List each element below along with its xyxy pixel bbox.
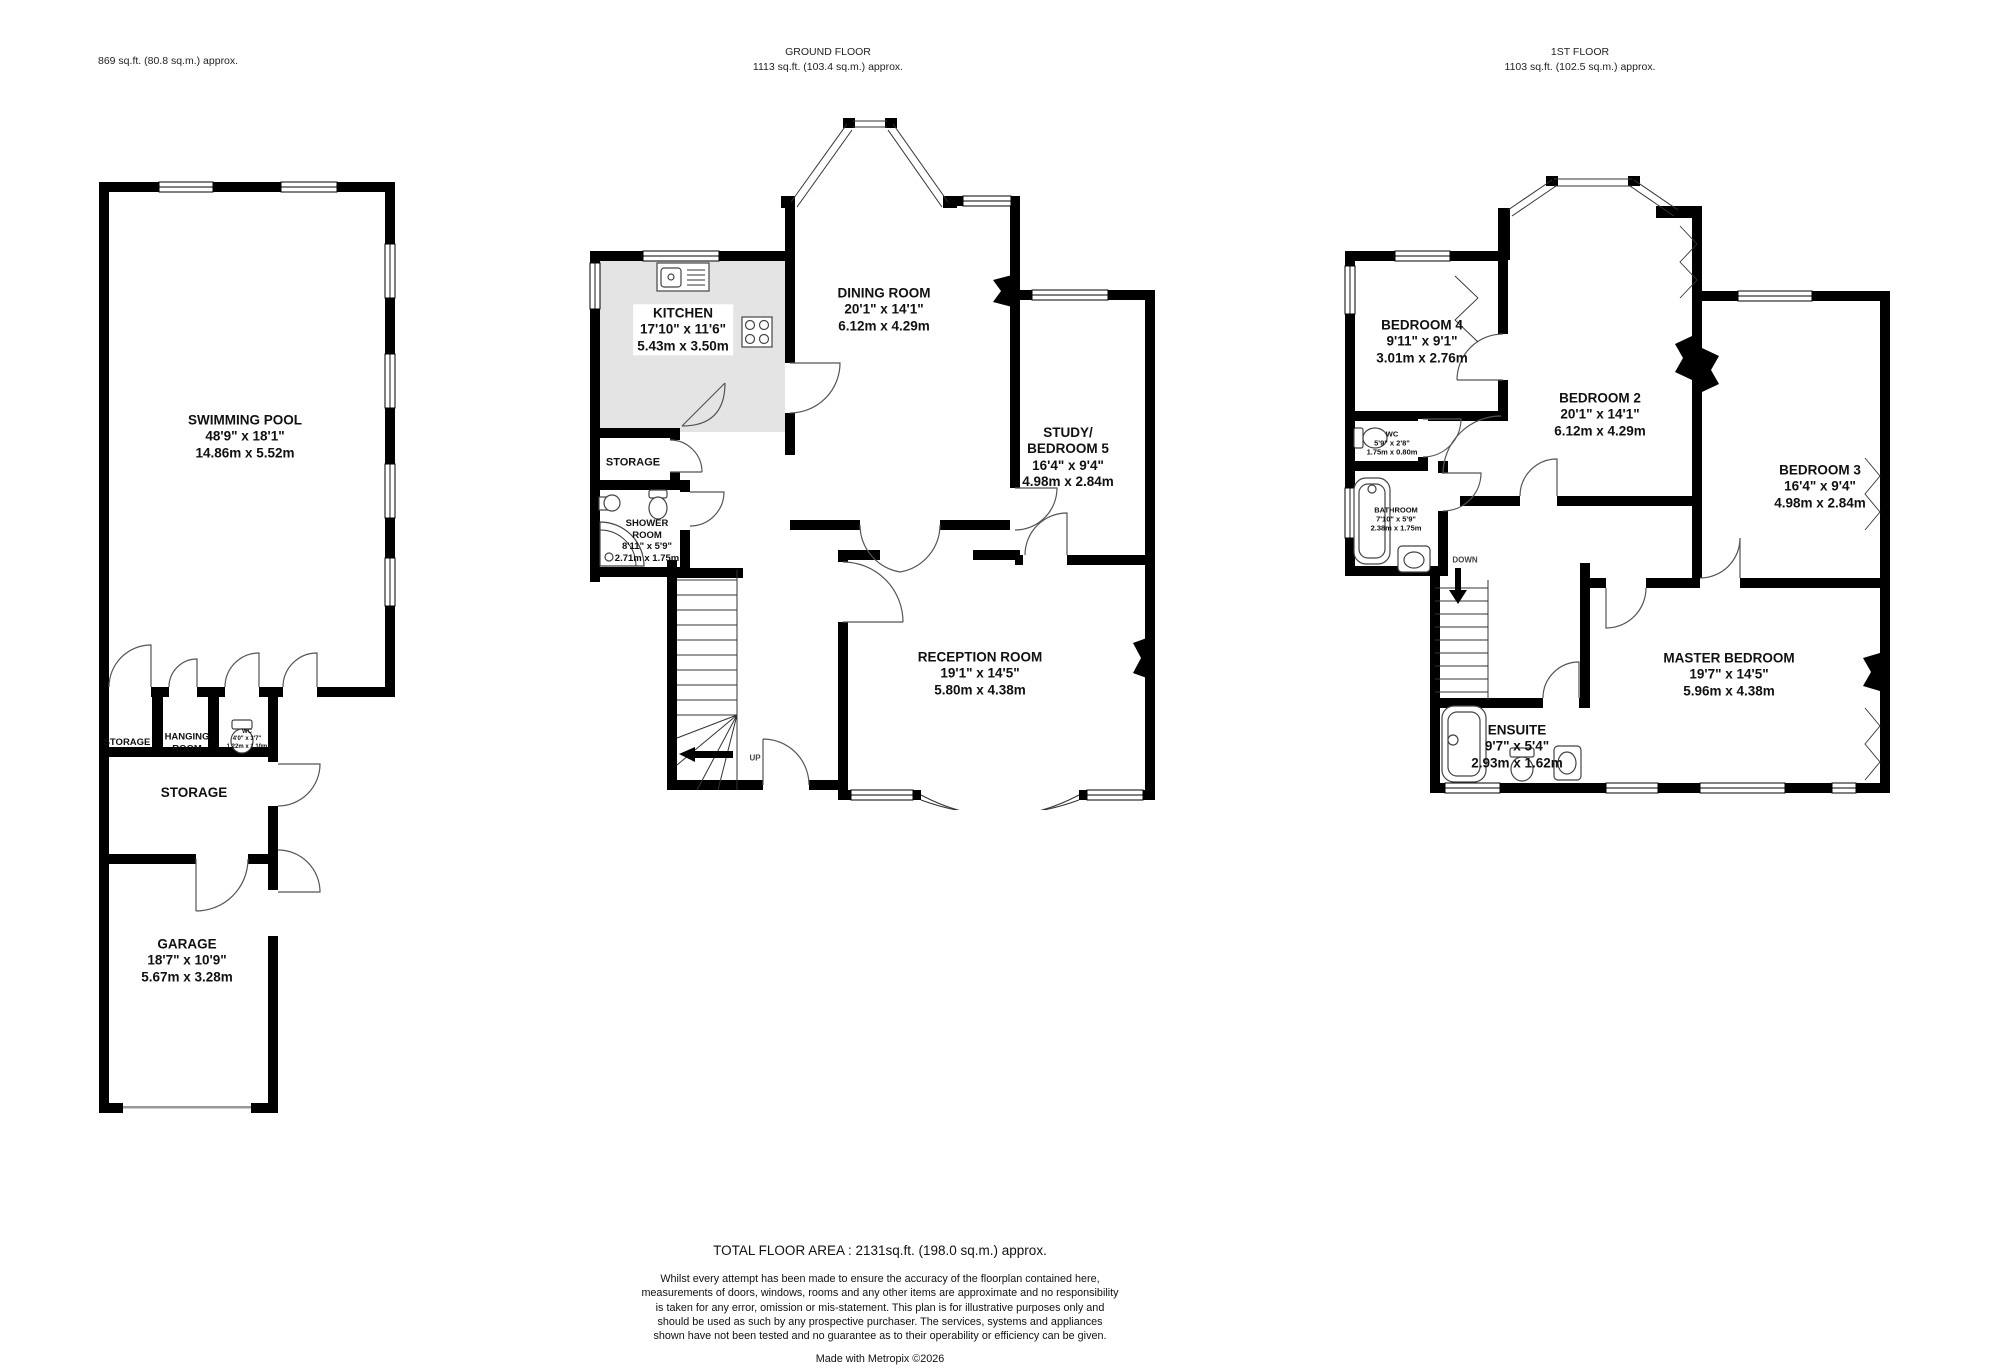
down-arrow bbox=[1455, 568, 1461, 592]
room-label-shower-room: SHOWER ROOM 8'11" x 5'9" 2.71m x 1.75m bbox=[612, 518, 682, 564]
stairs-down-label: DOWN bbox=[1452, 556, 1477, 565]
room-label-hanging-room: HANGING ROOM bbox=[156, 731, 218, 754]
room-label-storage-small: STORAGE bbox=[104, 737, 151, 749]
bay-window bbox=[791, 121, 948, 207]
room-label-dining-room: DINING ROOM 20'1" x 14'1" 6.12m x 4.29m bbox=[838, 285, 931, 334]
room-label-reception-room: RECEPTION ROOM 19'1" x 14'5" 5.80m x 4.3… bbox=[918, 649, 1043, 698]
pool-area-text: 869 sq.ft. (80.8 sq.m.) approx. bbox=[98, 54, 238, 69]
up-arrow-head bbox=[679, 747, 695, 762]
first-floor-area: 1103 sq.ft. (102.5 sq.m.) approx. bbox=[1505, 60, 1656, 75]
room-label-master-bedroom: MASTER BEDROOM 19'7" x 14'5" 5.96m x 4.3… bbox=[1663, 650, 1794, 699]
stairs bbox=[1435, 568, 1488, 700]
room-label-ensuite: ENSUITE 9'7" x 5'4" 2.93m x 1.62m bbox=[1471, 722, 1563, 771]
total-floor-area: TOTAL FLOOR AREA : 2131sq.ft. (198.0 sq.… bbox=[713, 1243, 1047, 1258]
room-label-storage-band: STORAGE bbox=[161, 785, 228, 801]
sink-icon bbox=[1398, 546, 1430, 572]
pool-area-header: 869 sq.ft. (80.8 sq.m.) approx. bbox=[98, 54, 238, 69]
ground-floor-area: 1113 sq.ft. (103.4 sq.m.) approx. bbox=[753, 60, 903, 75]
metropix-credit: Made with Metropix ©2026 bbox=[816, 1353, 945, 1365]
room-label-kitchen: KITCHEN 17'10" x 11'6" 5.43m x 3.50m bbox=[633, 304, 733, 355]
windows bbox=[159, 182, 395, 606]
door-arcs bbox=[109, 645, 320, 911]
ground-floor-header: GROUND FLOOR 1113 sq.ft. (103.4 sq.m.) a… bbox=[753, 45, 903, 74]
down-arrow-head bbox=[1449, 590, 1467, 604]
room-label-storage-ground: STORAGE bbox=[606, 456, 660, 469]
fireplace-icon bbox=[1675, 336, 1890, 694]
first-floor-title: 1ST FLOOR bbox=[1505, 45, 1656, 60]
room-label-bedroom4: BEDROOM 4 9'11" x 9'1" 3.01m x 2.76m bbox=[1376, 317, 1468, 366]
room-label-study: STUDY/ BEDROOM 5 16'4" x 9'4" 4.98m x 2.… bbox=[1022, 425, 1114, 491]
ground-floor-title: GROUND FLOOR bbox=[753, 45, 903, 60]
room-label-wc-pool: WC 4'0" x 3'7" 1.22m x 1.10m bbox=[227, 729, 268, 751]
disclaimer-text: Whilst every attempt has been made to en… bbox=[641, 1272, 1119, 1344]
up-arrow bbox=[695, 751, 733, 758]
stairs-up-label: UP bbox=[749, 754, 760, 763]
basin-icon bbox=[599, 495, 620, 511]
toilet-icon bbox=[649, 490, 667, 519]
room-label-garage: GARAGE 18'7" x 10'9" 5.67m x 3.28m bbox=[141, 936, 233, 985]
sink-icon bbox=[657, 263, 709, 291]
room-label-bedroom3: BEDROOM 3 16'4" x 9'4" 4.98m x 2.84m bbox=[1774, 462, 1866, 511]
stove-icon bbox=[742, 317, 772, 347]
room-label-bathroom: BATHROOM 7'10" x 5'9" 2.38m x 1.75m bbox=[1371, 505, 1422, 532]
room-label-swimming-pool: SWIMMING POOL 48'9" x 18'1" 14.86m x 5.5… bbox=[188, 412, 302, 461]
room-label-bedroom2: BEDROOM 2 20'1" x 14'1" 6.12m x 4.29m bbox=[1554, 390, 1646, 439]
bay-window bbox=[1508, 179, 1678, 216]
room-label-wc-first: WC 5'9" x 2'8" 1.75m x 0.80m bbox=[1367, 429, 1418, 456]
garage-door bbox=[123, 1106, 251, 1109]
first-floor-header: 1ST FLOOR 1103 sq.ft. (102.5 sq.m.) appr… bbox=[1505, 45, 1656, 74]
stairs bbox=[677, 570, 737, 790]
